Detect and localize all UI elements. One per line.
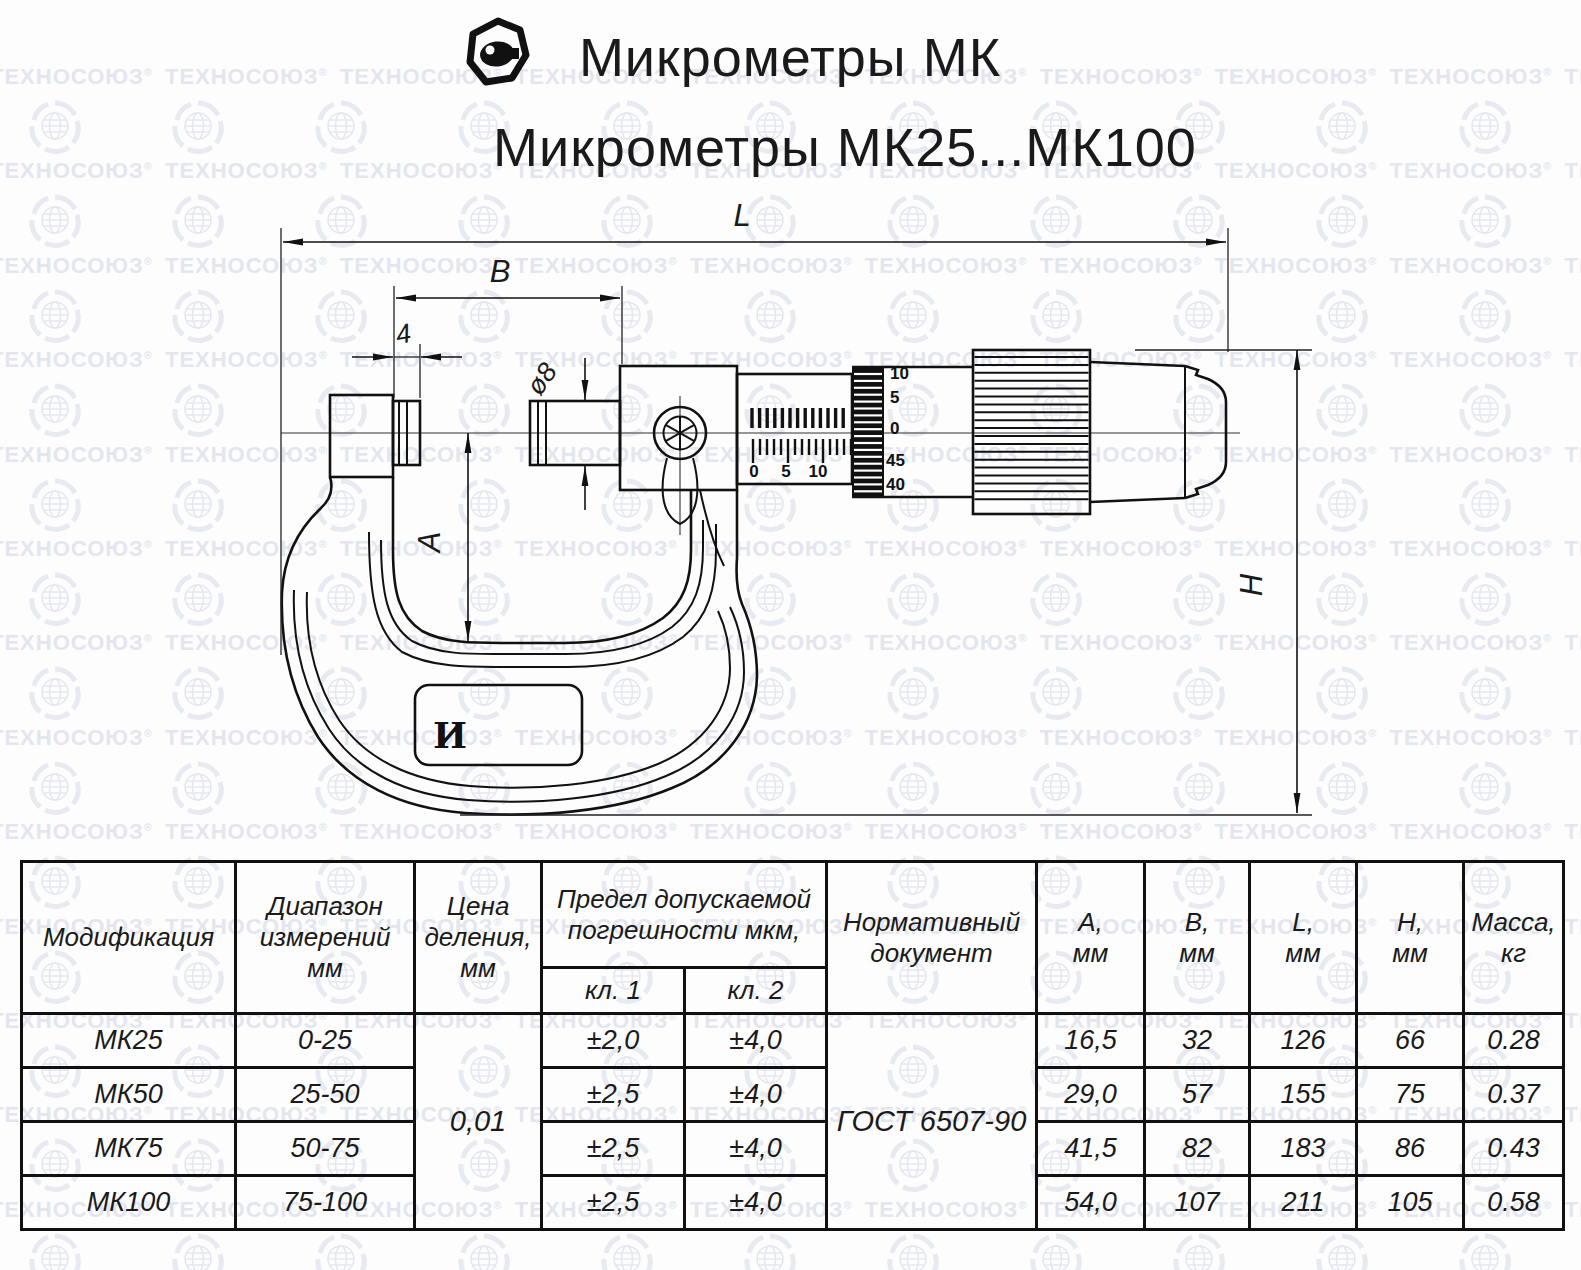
dimension-label-4: 4 — [393, 318, 413, 350]
cell-division: 0,01 — [415, 1014, 542, 1230]
sleeve-upper-ticks — [752, 408, 843, 428]
sleeve: 0 5 10 — [737, 374, 852, 484]
cell-kl2: ±4,0 — [685, 1176, 827, 1230]
cell-mass: 0.37 — [1464, 1068, 1564, 1122]
col-header-document: Нормативный документ — [827, 862, 1037, 1014]
thimble: 10 5 0 45 40 — [852, 350, 1090, 514]
cell-mass: 0.28 — [1464, 1014, 1564, 1068]
cell-h: 105 — [1357, 1176, 1464, 1230]
thimble-scale-40: 40 — [886, 475, 905, 494]
dimension-label-L: L — [733, 198, 750, 233]
cell-model: МК100 — [22, 1176, 236, 1230]
doc-title: Микрометры МК — [500, 26, 1080, 88]
thimble-scale-10: 10 — [890, 364, 909, 383]
cell-range: 75-100 — [236, 1176, 415, 1230]
cell-kl2: ±4,0 — [685, 1014, 827, 1068]
cell-kl1: ±2,5 — [542, 1176, 685, 1230]
sleeve-scale-5: 5 — [781, 462, 790, 481]
cell-a: 41,5 — [1037, 1122, 1145, 1176]
cell-a: 29,0 — [1037, 1068, 1145, 1122]
thimble-scale-45: 45 — [886, 451, 905, 470]
knurl-lines — [975, 357, 1089, 499]
cell-range: 50-75 — [236, 1122, 415, 1176]
cell-b: 82 — [1145, 1122, 1250, 1176]
col-header-mass: Масса,кг — [1464, 862, 1564, 1014]
cell-h: 86 — [1357, 1122, 1464, 1176]
cell-b: 32 — [1145, 1014, 1250, 1068]
thimble-scale-0: 0 — [890, 419, 899, 438]
spec-table: Модификация Диапазон измерений мм Цена д… — [20, 860, 1565, 1231]
ratchet-cap — [1090, 362, 1226, 502]
datasheet-page: ТЕХНОСОЮЗ® ТЕХНОСОЮЗ® ТЕХНОСОЮЗ® ТЕХНОСО… — [0, 0, 1581, 1270]
knurled-grip — [973, 350, 1090, 514]
table-row-mk100: МК100 75-100 ±2,5 ±4,0 54,0 107 211 105 … — [22, 1176, 1564, 1230]
thimble-scale-5: 5 — [890, 388, 899, 407]
cell-mass: 0.58 — [1464, 1176, 1564, 1230]
dimension-label-dia8: ø8 — [520, 357, 563, 400]
cell-model: МК50 — [22, 1068, 236, 1122]
cell-kl2: ±4,0 — [685, 1122, 827, 1176]
title-bar: Микрометры МК Микрометры МК25...МК100 — [0, 0, 1581, 190]
dimension-label-B: B — [490, 254, 511, 289]
cell-kl1: ±2,0 — [542, 1014, 685, 1068]
cell-kl1: ±2,5 — [542, 1122, 685, 1176]
cell-document: ГОСТ 6507-90 — [827, 1014, 1037, 1230]
dimension-anvil-4: 4 — [352, 318, 462, 398]
dimension-label-A: A — [412, 532, 447, 555]
cell-model: МК25 — [22, 1014, 236, 1068]
cell-range: 25-50 — [236, 1068, 415, 1122]
cell-h: 75 — [1357, 1068, 1464, 1122]
dimension-B: B — [394, 254, 622, 398]
cell-l: 126 — [1250, 1014, 1357, 1068]
table-row-mk75: МК75 50-75 ±2,5 ±4,0 41,5 82 183 86 0.43 — [22, 1122, 1564, 1176]
col-header-H: Н,мм — [1357, 862, 1464, 1014]
col-header-division: Цена деления, мм — [415, 862, 542, 1014]
col-header-class2: кл. 2 — [685, 968, 827, 1014]
cell-b: 107 — [1145, 1176, 1250, 1230]
cell-a: 16,5 — [1037, 1014, 1145, 1068]
cell-model: МК75 — [22, 1122, 236, 1176]
col-header-B: В,мм — [1145, 862, 1250, 1014]
col-header-range: Диапазон измерений мм — [236, 862, 415, 1014]
watermark-globe-row — [26, 1229, 1581, 1270]
col-header-modification: Модификация — [22, 862, 236, 1014]
sleeve-scale-10: 10 — [809, 462, 828, 481]
technical-drawing: И 0 5 10 — [0, 190, 1581, 855]
sleeve-scale-0: 0 — [749, 462, 758, 481]
cell-b: 57 — [1145, 1068, 1250, 1122]
doc-subtitle: Микрометры МК25...МК100 — [480, 116, 1210, 178]
frame-plate-mark: И — [433, 714, 467, 756]
cell-kl2: ±4,0 — [685, 1068, 827, 1122]
cell-l: 211 — [1250, 1176, 1357, 1230]
table-row-mk50: МК50 25-50 ±2,5 ±4,0 29,0 57 155 75 0.37 — [22, 1068, 1564, 1122]
table-row-mk25: МК25 0-25 0,01 ±2,0 ±4,0 ГОСТ 6507-90 16… — [22, 1014, 1564, 1068]
col-header-error: Предел допускаемой погрешности мкм, — [542, 862, 827, 968]
dimension-label-H: H — [1234, 573, 1269, 596]
cell-range: 0-25 — [236, 1014, 415, 1068]
col-header-class1: кл. 1 — [542, 968, 685, 1014]
dimension-L: L — [281, 198, 1228, 655]
frame-boss — [620, 366, 737, 524]
cell-kl1: ±2,5 — [542, 1068, 685, 1122]
col-header-L: L,мм — [1250, 862, 1357, 1014]
cell-a: 54,0 — [1037, 1176, 1145, 1230]
cell-mass: 0.43 — [1464, 1122, 1564, 1176]
sleeve-lower-ticks — [753, 439, 851, 463]
cell-h: 66 — [1357, 1014, 1464, 1068]
col-header-A: А,мм — [1037, 862, 1145, 1014]
cell-l: 183 — [1250, 1122, 1357, 1176]
cell-l: 155 — [1250, 1068, 1357, 1122]
